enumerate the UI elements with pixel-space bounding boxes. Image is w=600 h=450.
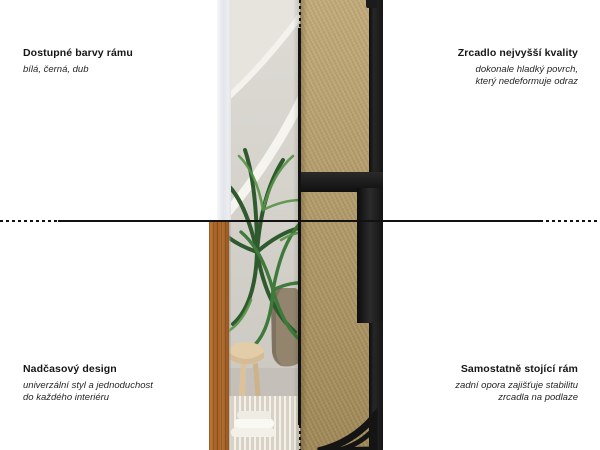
subtitle-line: dokonale hladký povrch, [458, 64, 578, 76]
subtitle-line: bílá, černá, dub [23, 64, 133, 76]
feature-title: Dostupné barvy rámu [23, 47, 133, 60]
divider-horizontal-dotted-right [540, 220, 600, 222]
divider-horizontal-dotted-left [0, 220, 58, 222]
folded-textiles [231, 411, 275, 437]
subtitle-line: do každého interiéru [23, 392, 153, 404]
feature-mirror-quality: Zrcadlo nejvyšší kvality dokonale hladký… [458, 47, 578, 88]
subtitle-line: univerzální styl a jednoduchost [23, 380, 153, 392]
mirror-back-panel [300, 0, 383, 450]
infographic-canvas: Dostupné barvy rámu bílá, černá, dub Zrc… [0, 0, 600, 450]
divider-vertical-dotted-top [299, 0, 301, 28]
stand-leg-curve [300, 405, 383, 450]
subtitle-line: který nedeformuje odraz [458, 76, 578, 88]
feature-frame-colors: Dostupné barvy rámu bílá, černá, dub [23, 47, 133, 76]
mirror-frame-white [217, 0, 231, 221]
feature-subtitle: dokonale hladký povrch, který nedeformuj… [458, 64, 578, 88]
reflection-scene [229, 0, 300, 450]
feature-title: Nadčasový design [23, 363, 153, 376]
divider-vertical-solid [298, 28, 301, 425]
feature-subtitle: univerzální styl a jednoduchost do každé… [23, 380, 153, 404]
divider-vertical-dotted-bottom [299, 425, 301, 450]
feature-title: Samostatně stojící rám [455, 363, 578, 376]
frame-clip [366, 0, 377, 8]
mirror-glass-reflection [229, 0, 300, 450]
subtitle-line: zadní opora zajišťuje stabilitu [455, 380, 578, 392]
feature-subtitle: zadní opora zajišťuje stabilitu zrcadla … [455, 380, 578, 404]
feature-free-standing: Samostatně stojící rám zadní opora zajiš… [455, 363, 578, 404]
stand-leg-upper [357, 188, 383, 323]
feature-subtitle: bílá, černá, dub [23, 64, 133, 76]
feature-timeless-design: Nadčasový design univerzální styl a jedn… [23, 363, 153, 404]
subtitle-line: zrcadla na podlaze [455, 392, 578, 404]
mirror-frame-oak [209, 221, 229, 450]
feature-title: Zrcadlo nejvyšší kvality [458, 47, 578, 60]
